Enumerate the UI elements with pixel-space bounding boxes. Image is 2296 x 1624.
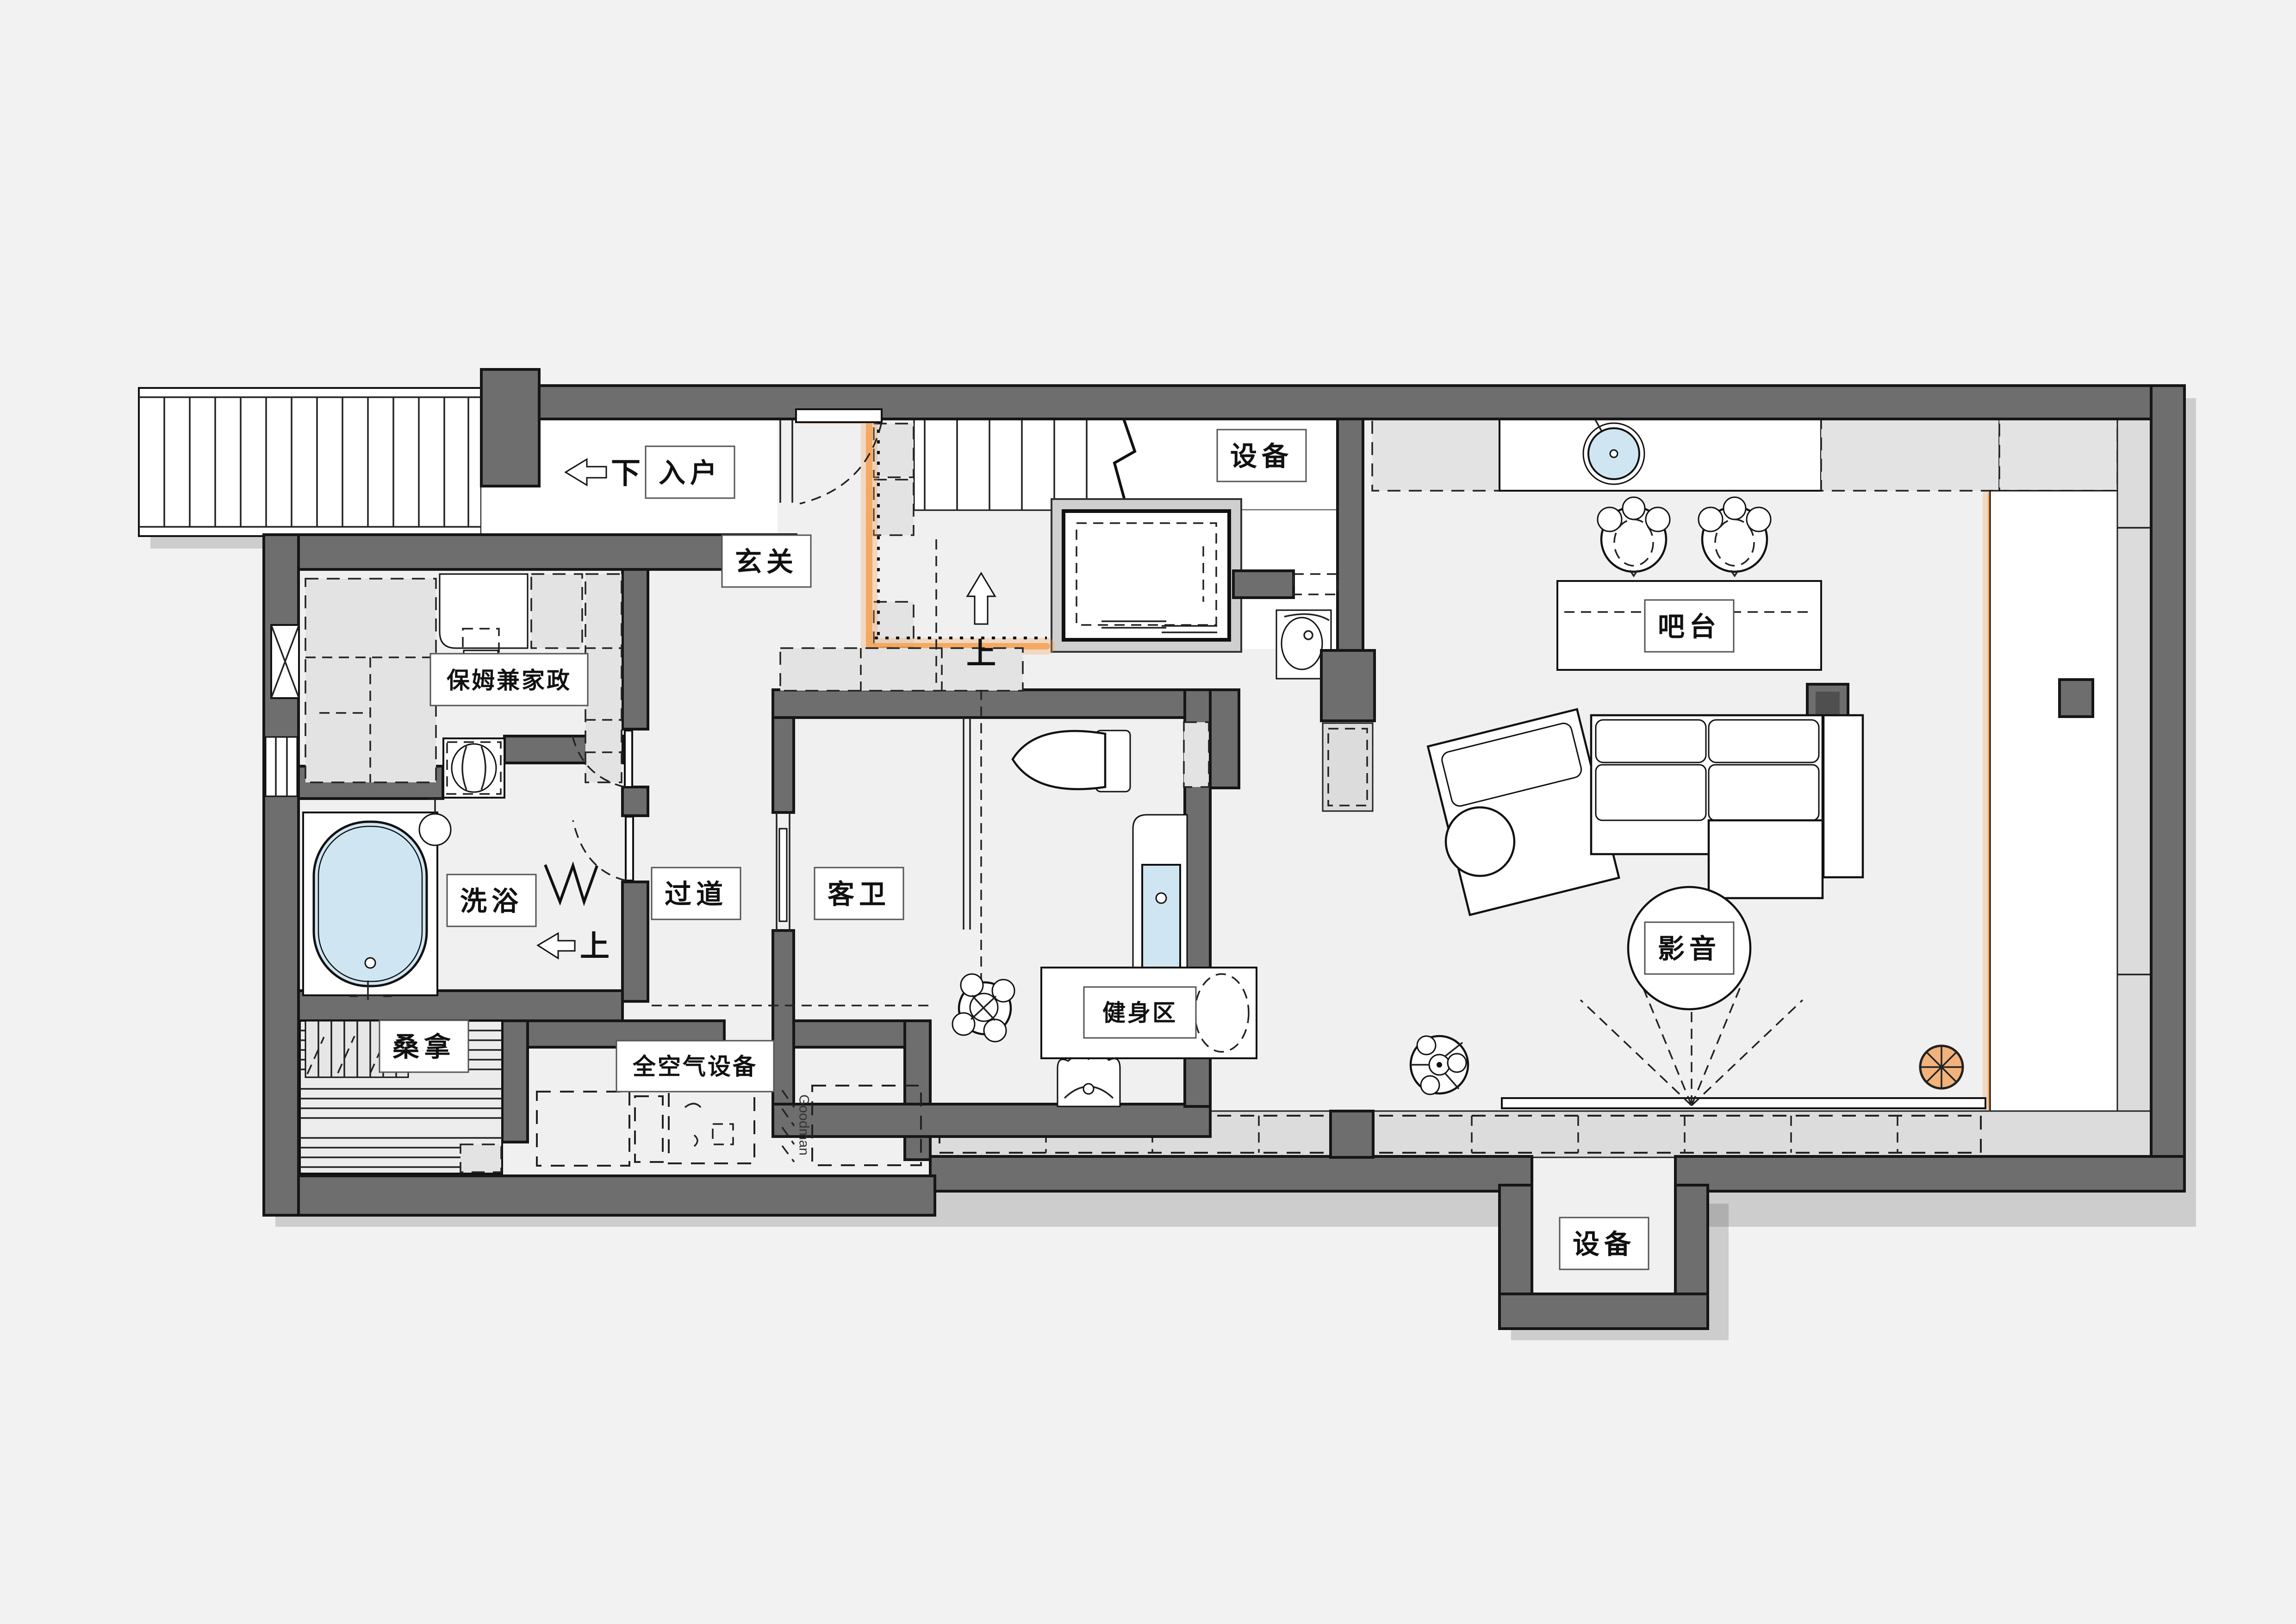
room-label-foyer: 玄关 <box>722 535 811 587</box>
room-label-air-equipment: 全空气设备 <box>616 1041 774 1092</box>
mop-basin-icon <box>1058 1055 1120 1106</box>
svg-text:桑拿: 桑拿 <box>392 1032 455 1062</box>
room-label-entry: 入户 <box>646 446 734 498</box>
svg-text:洗浴: 洗浴 <box>460 887 523 917</box>
svg-text:上: 上 <box>580 930 610 963</box>
room-label-equipment-bottom: 设备 <box>1560 1218 1649 1269</box>
room-label-nanny: 保姆兼家政 <box>430 654 588 706</box>
ceiling-fan-icon <box>1411 1036 1468 1094</box>
pocket-door-leaf <box>779 829 787 921</box>
floorplan-drawing: Goodman <box>0 0 2296 1624</box>
svg-text:健身区: 健身区 <box>1102 1000 1177 1026</box>
cabinet <box>531 574 582 648</box>
downlight-symbol-icon <box>1920 1046 1963 1088</box>
left-wall-window <box>266 737 297 796</box>
svg-text:下: 下 <box>611 456 641 490</box>
svg-text:设备: 设备 <box>1230 442 1293 472</box>
room-label-sauna: 桑拿 <box>380 1020 468 1072</box>
nanny-door-leaf <box>625 731 632 787</box>
svg-text:上: 上 <box>966 637 996 670</box>
svg-text:设备: 设备 <box>1573 1230 1636 1260</box>
room-label-corridor: 过道 <box>652 868 740 919</box>
column-x-icon <box>271 625 299 698</box>
svg-text:全空气设备: 全空气设备 <box>632 1054 758 1080</box>
exterior-staircase-icon <box>139 388 481 536</box>
column-cabinet <box>1323 723 1373 811</box>
hvac-brand-label: Goodman <box>796 1094 812 1156</box>
room-label-fitness: 健身区 <box>1084 987 1196 1038</box>
shower-tray-icon <box>443 738 504 798</box>
elevator-shaft-icon <box>1052 499 1241 652</box>
round-side-table-icon <box>1446 807 1514 876</box>
svg-text:玄关: 玄关 <box>735 547 798 577</box>
room-label-guest-bathroom: 客卫 <box>815 868 903 919</box>
room-label-bath: 洗浴 <box>447 874 536 926</box>
bath-door-leaf <box>626 817 633 881</box>
svg-text:影音: 影音 <box>1658 934 1721 964</box>
svg-text:入户: 入户 <box>659 458 722 488</box>
svg-text:客卫: 客卫 <box>828 880 890 910</box>
wardrobe-cabinets-icon <box>585 574 622 782</box>
toilet-ledge <box>1184 722 1209 787</box>
room-label-media: 影音 <box>1645 922 1734 974</box>
bathtub-icon <box>303 812 437 1000</box>
svg-text:吧台: 吧台 <box>1658 612 1721 642</box>
room-label-equipment-top: 设备 <box>1217 430 1306 481</box>
bed-icon <box>305 579 436 782</box>
sauna-step <box>460 1144 501 1172</box>
floorplan-page: Goodman <box>0 0 2296 1624</box>
right-recess-strip <box>1990 419 2151 1148</box>
svg-text:过道: 过道 <box>665 880 728 910</box>
room-label-bar: 吧台 <box>1645 600 1734 652</box>
svg-text:保姆兼家政: 保姆兼家政 <box>447 668 572 693</box>
dumbbell-rack-icon <box>952 974 1014 1042</box>
